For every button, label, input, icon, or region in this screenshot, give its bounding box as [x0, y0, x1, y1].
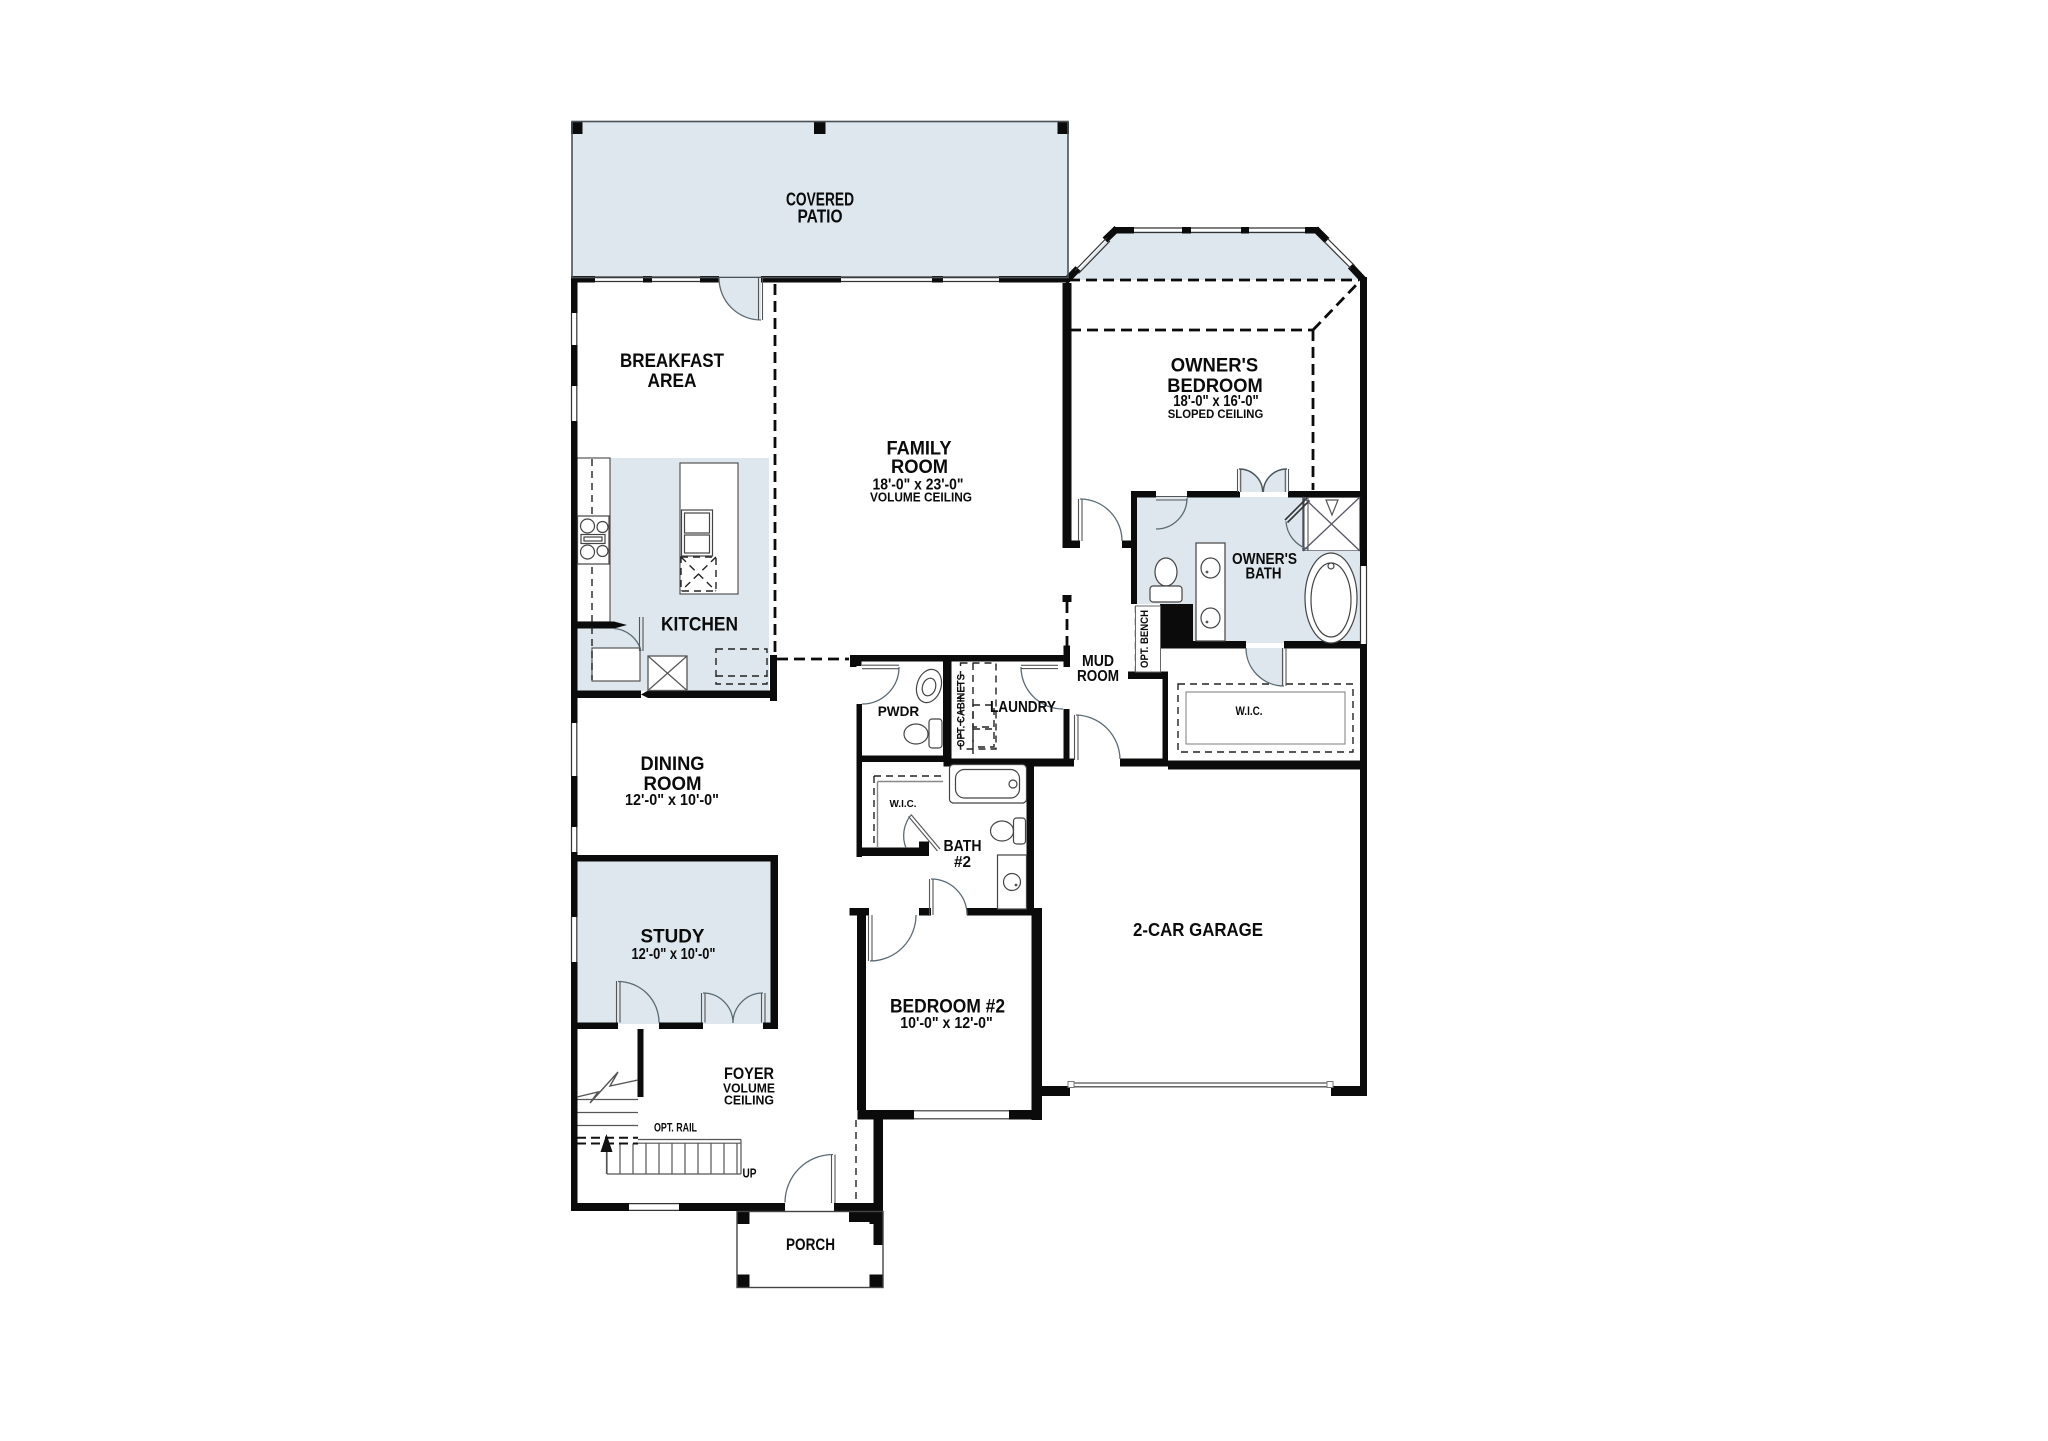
svg-text:OPT. BENCH: OPT. BENCH	[1139, 610, 1151, 668]
svg-text:18'-0" x 16'-0": 18'-0" x 16'-0"	[1173, 393, 1259, 410]
svg-text:ROOM: ROOM	[891, 457, 948, 478]
svg-text:OPT. RAIL: OPT. RAIL	[654, 1123, 697, 1135]
svg-text:OWNER'S: OWNER'S	[1171, 356, 1259, 377]
svg-text:STUDY: STUDY	[641, 927, 705, 948]
svg-text:DINING: DINING	[641, 754, 705, 775]
svg-text:#2: #2	[954, 854, 971, 871]
svg-text:BATH: BATH	[1246, 566, 1282, 583]
svg-text:UP: UP	[743, 1166, 757, 1181]
svg-text:W.I.C.: W.I.C.	[1236, 706, 1263, 718]
svg-text:OPT. CABINETS: OPT. CABINETS	[956, 674, 968, 747]
svg-text:BATH: BATH	[944, 838, 982, 855]
svg-text:2-CAR GARAGE: 2-CAR GARAGE	[1133, 920, 1263, 940]
svg-text:VOLUME CEILING: VOLUME CEILING	[870, 490, 972, 505]
svg-text:PORCH: PORCH	[786, 1235, 835, 1254]
svg-text:12'-0" x 10'-0": 12'-0" x 10'-0"	[625, 792, 719, 809]
svg-text:CEILING: CEILING	[724, 1093, 774, 1108]
svg-text:BREAKFAST: BREAKFAST	[620, 350, 724, 372]
svg-text:LAUNDRY: LAUNDRY	[990, 699, 1056, 716]
svg-text:SLOPED CEILING: SLOPED CEILING	[1168, 409, 1264, 421]
svg-text:12'-0" x 10'-0": 12'-0" x 10'-0"	[632, 946, 716, 963]
svg-text:PWDR: PWDR	[878, 703, 920, 719]
svg-text:ROOM: ROOM	[1077, 668, 1119, 685]
svg-text:AREA: AREA	[648, 370, 697, 392]
svg-text:W.I.C.: W.I.C.	[890, 798, 917, 810]
svg-text:10'-0" x 12'-0": 10'-0" x 12'-0"	[900, 1015, 993, 1032]
svg-text:PATIO: PATIO	[798, 207, 843, 227]
svg-text:KITCHEN: KITCHEN	[661, 615, 738, 636]
